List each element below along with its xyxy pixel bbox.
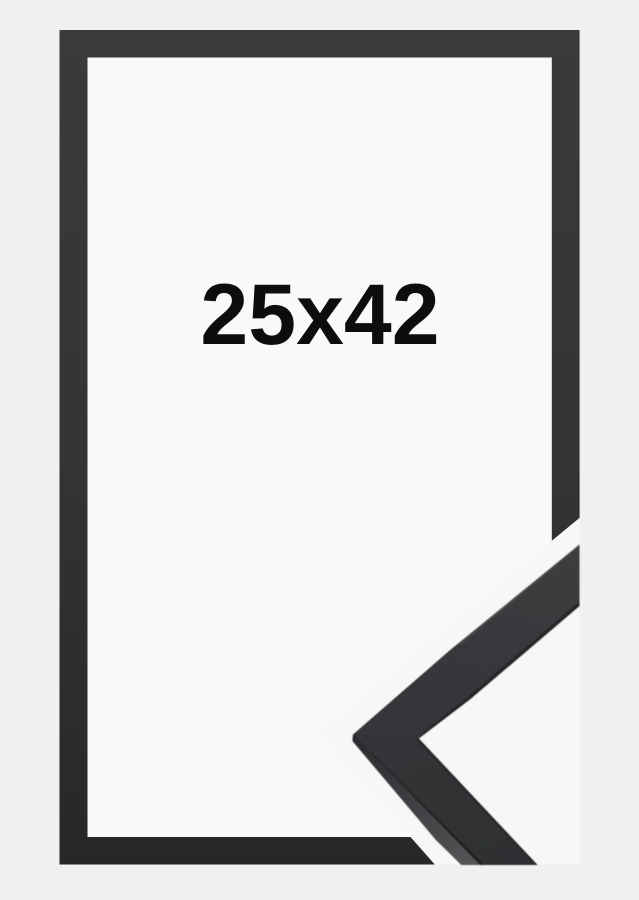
svg-text:25x42: 25x42 — [200, 267, 439, 363]
